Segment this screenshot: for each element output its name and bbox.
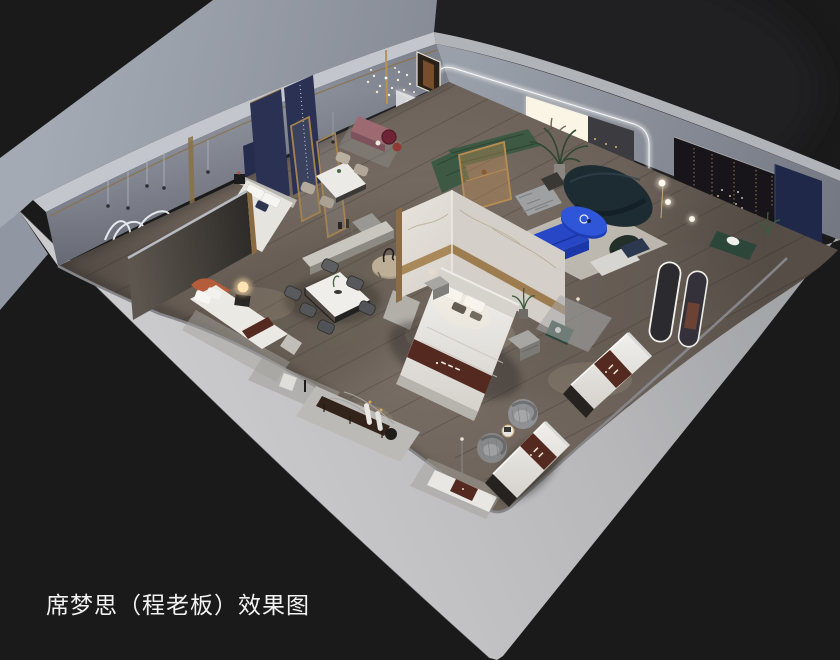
sphere-decor	[376, 141, 381, 146]
marble-wood-edge	[396, 207, 402, 303]
red-side-table-2	[393, 143, 402, 152]
side-table	[502, 425, 514, 437]
nightstand-lamp	[430, 270, 434, 274]
black-stool	[385, 428, 397, 440]
black-nightstand	[234, 174, 245, 184]
red-side-table-1	[382, 130, 396, 144]
caption-text: 席梦思（程老板）效果图	[46, 586, 310, 620]
doorway-wood	[423, 60, 434, 90]
glow-orb-lamp	[234, 278, 252, 307]
nightstand-decor	[238, 172, 241, 175]
render-scene	[0, 0, 840, 660]
table-plant	[337, 169, 341, 173]
render-canvas: 席梦思（程老板）效果图	[0, 0, 840, 660]
runner-logo-dot	[462, 488, 464, 490]
